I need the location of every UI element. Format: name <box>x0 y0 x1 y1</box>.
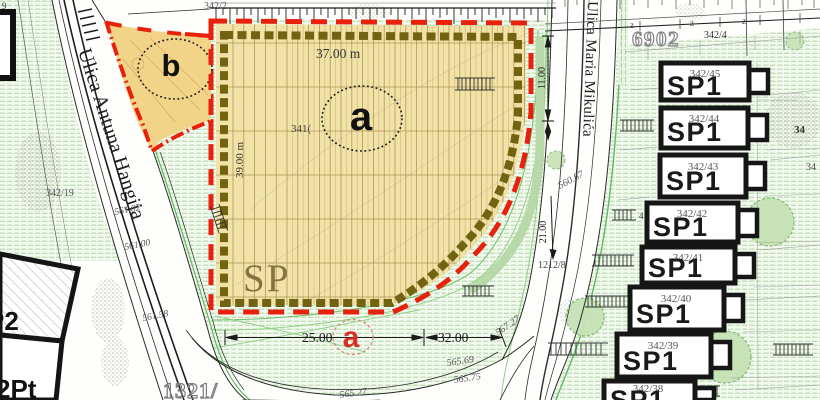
svg-text:11.00: 11.00 <box>537 67 548 89</box>
svg-text:z: z <box>690 18 694 28</box>
svg-text:P2: P2 <box>0 306 19 336</box>
svg-text:34: 34 <box>806 162 816 173</box>
svg-text:a: a <box>343 321 360 354</box>
svg-text:SP1: SP1 <box>623 346 679 376</box>
svg-text:342/4: 342/4 <box>704 30 727 41</box>
svg-text:2Pt: 2Pt <box>0 374 37 400</box>
svg-text:z: z <box>630 20 634 30</box>
svg-text:SP1: SP1 <box>666 166 722 196</box>
svg-text:z: z <box>742 16 746 26</box>
svg-text:37.00 m: 37.00 m <box>316 46 361 61</box>
svg-text:32.00: 32.00 <box>438 330 469 345</box>
svg-text:SP: SP <box>243 257 290 300</box>
svg-text:SP1: SP1 <box>636 299 692 329</box>
svg-text:25.00: 25.00 <box>302 330 333 345</box>
svg-text:SP1: SP1 <box>667 71 723 101</box>
svg-text:341(: 341( <box>291 123 312 135</box>
svg-text:1212/8: 1212/8 <box>538 260 566 271</box>
svg-text:4: 4 <box>639 211 644 221</box>
svg-text:39.00 m: 39.00 m <box>234 142 246 179</box>
svg-text:342/2: 342/2 <box>204 1 227 12</box>
svg-text:SP1: SP1 <box>667 117 723 147</box>
svg-text:21.00: 21.00 <box>538 221 549 244</box>
svg-text:SP1: SP1 <box>610 385 666 400</box>
svg-text:34: 34 <box>794 124 806 136</box>
svg-text:9: 9 <box>2 1 7 11</box>
svg-text:1321/: 1321/ <box>163 378 218 400</box>
svg-text:a: a <box>350 95 373 139</box>
svg-text:6902: 6902 <box>632 27 680 51</box>
svg-text:SP1: SP1 <box>648 253 704 283</box>
svg-text:SP1: SP1 <box>653 212 709 242</box>
svg-text:342/19: 342/19 <box>46 188 74 199</box>
svg-text:b: b <box>162 48 181 83</box>
